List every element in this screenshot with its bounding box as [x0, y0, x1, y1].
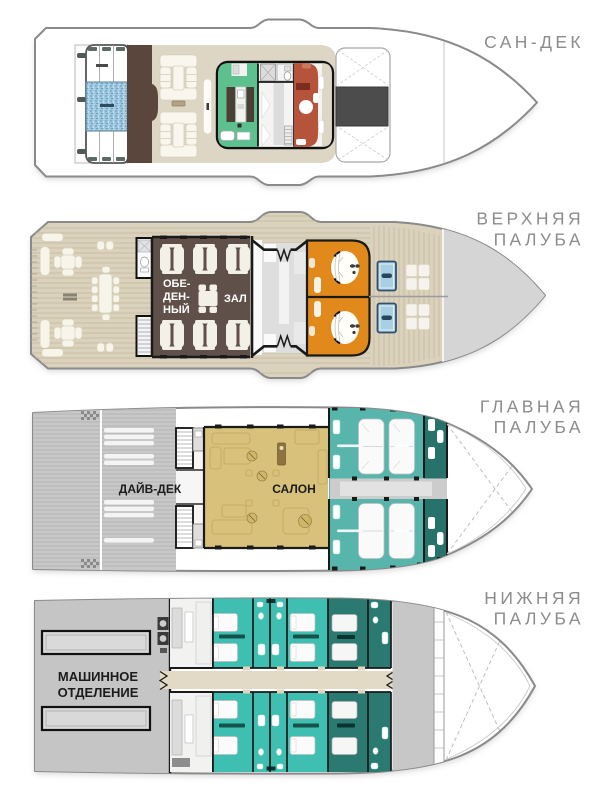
svg-text:ПАЛУБА: ПАЛУБА [494, 230, 584, 250]
svg-text:ЗАЛ: ЗАЛ [224, 293, 247, 305]
svg-text:ПАЛУБА: ПАЛУБА [494, 417, 584, 437]
svg-text:ВЕРХНЯЯ: ВЕРХНЯЯ [476, 209, 584, 229]
svg-text:САН-ДЕК: САН-ДЕК [484, 32, 584, 52]
svg-text:ОБЕ-: ОБЕ- [163, 278, 191, 290]
svg-text:САЛОН: САЛОН [272, 482, 316, 496]
svg-text:НИЖНЯЯ: НИЖНЯЯ [484, 588, 584, 608]
svg-text:ОТДЕЛЕНИЕ: ОТДЕЛЕНИЕ [58, 685, 139, 700]
svg-text:ГЛАВНАЯ: ГЛАВНАЯ [480, 397, 584, 417]
svg-text:ПАЛУБА: ПАЛУБА [494, 609, 584, 629]
svg-text:НЫЙ: НЫЙ [163, 303, 190, 316]
svg-text:МАШИННОЕ: МАШИННОЕ [58, 669, 139, 684]
svg-text:ДЕН-: ДЕН- [163, 291, 190, 303]
svg-text:ДАЙВ-ДЕК: ДАЙВ-ДЕК [119, 481, 182, 496]
